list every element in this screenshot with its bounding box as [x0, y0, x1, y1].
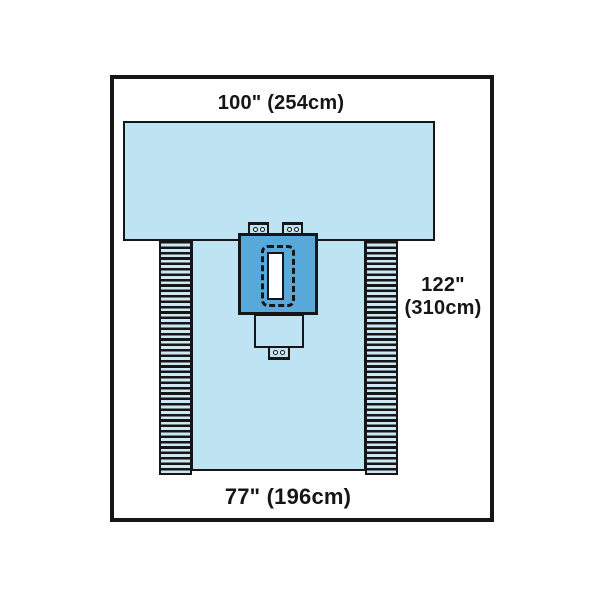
pleated-side-left — [159, 239, 192, 475]
tube-holder-tab-bottom — [268, 346, 290, 360]
reinforcement-patch — [238, 233, 318, 315]
eyelet-icon — [287, 227, 292, 232]
tube-holder-tab-right — [282, 222, 303, 235]
top-width-label: 100" (254cm) — [131, 92, 431, 115]
bottom-width-label: 77" (196cm) — [138, 484, 438, 510]
fenestration-opening — [267, 252, 284, 300]
pleated-side-right — [365, 239, 398, 475]
eyelet-icon — [260, 227, 265, 232]
eyelet-icon — [294, 227, 299, 232]
eyelet-icon — [280, 350, 285, 355]
side-length-cm: (310cm) — [398, 297, 488, 320]
eyelet-icon — [273, 350, 278, 355]
side-length-inches: 122" — [398, 274, 488, 297]
side-length-label: 122" (310cm) — [398, 274, 488, 320]
eyelet-icon — [253, 227, 258, 232]
drape-top-sheet — [123, 121, 435, 241]
surgical-drape-diagram: 100" (254cm) 122" (310cm) 77" (196cm) — [0, 0, 600, 600]
instrument-pouch — [254, 314, 304, 348]
tube-holder-tab-left — [248, 222, 269, 235]
